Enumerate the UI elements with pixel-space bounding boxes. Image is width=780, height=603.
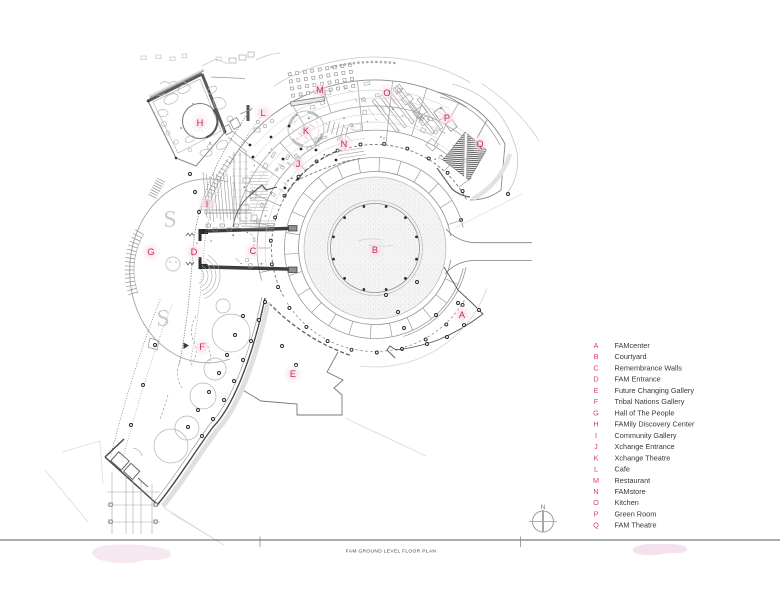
- svg-text:FAM GROUND LEVEL FLOOR PLAN: FAM GROUND LEVEL FLOOR PLAN: [346, 549, 437, 555]
- svg-text:Future Changing Gallery: Future Changing Gallery: [615, 386, 695, 395]
- svg-text:Q: Q: [593, 521, 599, 530]
- svg-text:O: O: [593, 498, 599, 507]
- svg-text:Q: Q: [476, 139, 483, 149]
- svg-text:Xchange Theatre: Xchange Theatre: [615, 453, 671, 462]
- svg-text:D: D: [191, 247, 198, 257]
- svg-text:Green Room: Green Room: [615, 510, 657, 519]
- svg-text:N: N: [593, 487, 598, 496]
- svg-text:E: E: [594, 386, 599, 395]
- svg-text:J: J: [594, 442, 598, 451]
- svg-text:M: M: [316, 85, 324, 95]
- svg-text:Hall of The People: Hall of The People: [615, 408, 675, 417]
- svg-text:A: A: [594, 341, 599, 350]
- svg-text:J: J: [296, 159, 301, 169]
- svg-text:D: D: [593, 375, 598, 384]
- svg-text:G: G: [593, 408, 599, 417]
- svg-text:C: C: [250, 246, 257, 256]
- svg-text:FAMily Discovery Center: FAMily Discovery Center: [615, 420, 695, 429]
- svg-text:E: E: [290, 369, 296, 379]
- svg-text:S: S: [163, 207, 176, 233]
- svg-text:H: H: [197, 118, 204, 128]
- svg-text:FAMcenter: FAMcenter: [615, 341, 651, 350]
- svg-text:Remembrance Walls: Remembrance Walls: [615, 364, 683, 373]
- svg-text:FAM Entrance: FAM Entrance: [615, 375, 661, 384]
- svg-text:M: M: [593, 476, 599, 485]
- svg-text:P: P: [444, 113, 450, 123]
- svg-text:I: I: [595, 431, 597, 440]
- svg-text:K: K: [594, 453, 599, 462]
- svg-text:G: G: [147, 247, 154, 257]
- svg-text:L: L: [594, 465, 598, 474]
- svg-text:N: N: [341, 139, 348, 149]
- svg-text:F: F: [594, 397, 599, 406]
- svg-text:Restaurant: Restaurant: [615, 476, 651, 485]
- svg-text:S: S: [156, 306, 169, 332]
- svg-text:P: P: [594, 510, 599, 519]
- svg-text:B: B: [372, 245, 378, 255]
- svg-text:Community Gallery: Community Gallery: [615, 431, 677, 440]
- svg-text:B: B: [594, 352, 599, 361]
- svg-text:Cafe: Cafe: [615, 465, 630, 474]
- svg-text:K: K: [303, 126, 310, 136]
- svg-text:O: O: [383, 88, 390, 98]
- svg-text:Tribal Nations Gallery: Tribal Nations Gallery: [615, 397, 685, 406]
- svg-text:Xchange Entrance: Xchange Entrance: [615, 442, 675, 451]
- svg-text:FAM Theatre: FAM Theatre: [615, 521, 657, 530]
- svg-text:C: C: [593, 364, 598, 373]
- svg-text:FAMstore: FAMstore: [615, 487, 646, 496]
- svg-text:A: A: [459, 310, 466, 320]
- svg-text:F: F: [199, 342, 205, 352]
- svg-text:Courtyard: Courtyard: [615, 352, 647, 361]
- svg-text:Kitchen: Kitchen: [615, 498, 639, 507]
- svg-text:N: N: [541, 504, 546, 511]
- svg-text:L: L: [260, 108, 265, 118]
- svg-text:H: H: [593, 420, 598, 429]
- svg-text:I: I: [206, 199, 209, 209]
